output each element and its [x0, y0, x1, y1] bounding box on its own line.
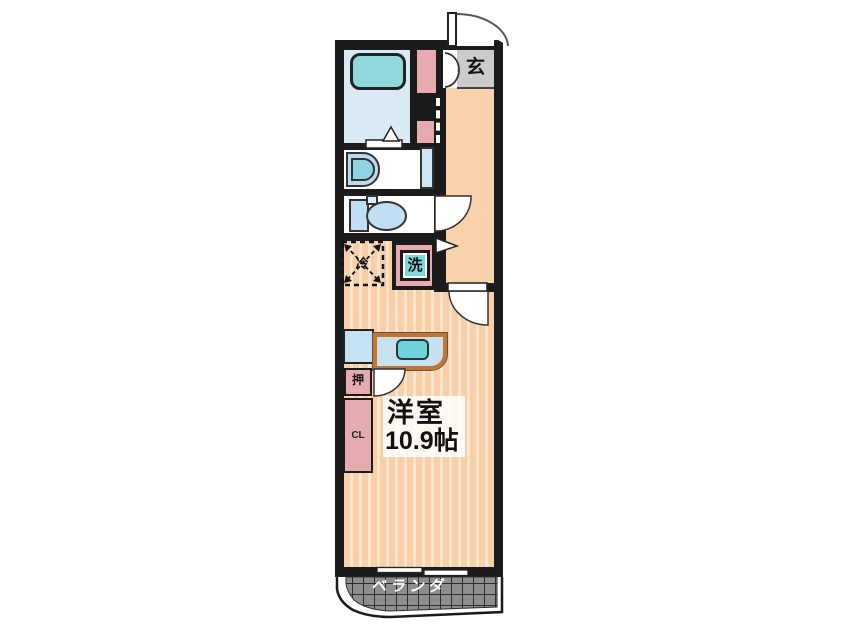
- refrigerator-label: 冷: [341, 257, 383, 270]
- room-name-label: 洋室: [387, 400, 445, 427]
- toilet-door-arc: [435, 196, 471, 231]
- closet-label: CL: [343, 431, 373, 441]
- veranda-window-right: [424, 570, 468, 576]
- symbols-layer: [0, 0, 846, 634]
- room-size-label: 10.9帖: [385, 429, 459, 454]
- entrance-label: 玄: [457, 58, 494, 77]
- closet-door-arc: [374, 369, 405, 396]
- hallway-door-triangle: [436, 238, 457, 253]
- washer-label: 洗: [400, 258, 430, 273]
- entrance-door-arc: [456, 14, 508, 46]
- bath-door-triangle: [383, 127, 399, 141]
- veranda-label: ベランダ: [357, 579, 463, 594]
- oshiire-label: 押: [344, 374, 372, 386]
- entrance-door-leaf: [448, 13, 456, 46]
- floor-plan: 玄 洗 冷 押 CL 洋室 10.9帖 ベランダ: [0, 0, 846, 634]
- veranda-window-left: [377, 568, 422, 573]
- main-room-door-arc: [449, 291, 488, 325]
- main-room-door-leaf: [448, 283, 487, 291]
